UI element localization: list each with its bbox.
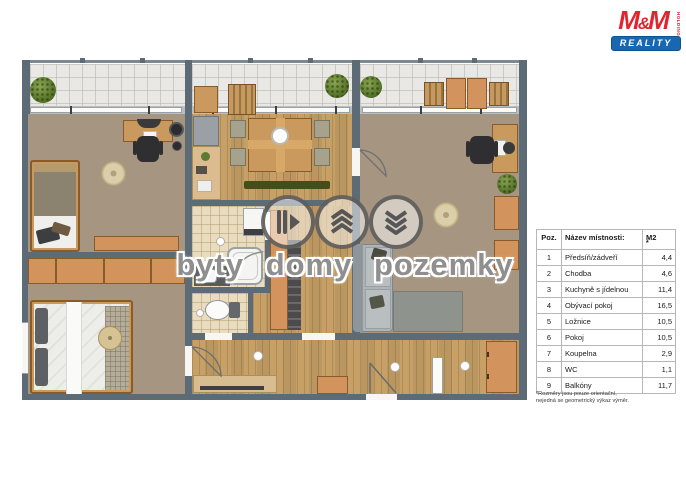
watermark-circle (369, 195, 423, 249)
balcony-chair (489, 82, 509, 106)
window-mullion (148, 106, 150, 114)
cell-name: Obývací pokoj (562, 298, 643, 314)
washing-machine-panel (244, 229, 263, 235)
balcony-table (446, 78, 466, 109)
window-mullion (420, 106, 422, 114)
room-table: Poz. Název místnosti: M2 * 1Předsíň/zádv… (536, 229, 676, 394)
header-area-note: * (646, 242, 672, 246)
table-row: 3Kuchyně s jídelnou11,4 (537, 282, 676, 298)
footnote-line: nejedná se geometrický výkaz výměr. (536, 398, 681, 405)
office-chair (137, 136, 159, 162)
header-pos: Poz. (537, 230, 562, 250)
wardrobe-handle (487, 352, 489, 357)
plant-icon (30, 77, 56, 103)
pillow (35, 308, 48, 344)
cell-pos: 8 (537, 362, 562, 378)
door-leaf (432, 357, 443, 394)
monitor (503, 142, 515, 154)
cell-pos: 2 (537, 266, 562, 282)
cell-area: 10,5 (643, 314, 676, 330)
fridge (193, 116, 219, 146)
logo-holding-text: HOLDING (676, 12, 681, 36)
rail-post (140, 58, 145, 63)
rail-post (472, 58, 477, 63)
round-rug (433, 202, 459, 228)
balcony-table (467, 78, 487, 109)
rail-post (418, 58, 423, 63)
shoe-rack (200, 386, 264, 390)
cell-area: 11,4 (643, 282, 676, 298)
pillow (35, 348, 48, 386)
chair-armrest (133, 141, 137, 155)
cell-pos: 1 (537, 250, 562, 266)
toilet-bowl (205, 300, 230, 320)
table-row: 1Předsíň/zádveří4,4 (537, 250, 676, 266)
door-opening (302, 333, 335, 340)
watermark-circle (315, 195, 369, 249)
cell-area: 1,1 (643, 362, 676, 378)
balcony-chair (424, 82, 444, 106)
hall-wardrobe (486, 341, 517, 393)
cell-name: Koupelna (562, 346, 643, 362)
balcony-pillar (185, 60, 192, 114)
area-rug (393, 291, 463, 332)
chair-armrest (159, 141, 163, 155)
round-rug (101, 161, 126, 186)
rail-post (248, 58, 253, 63)
wall (185, 114, 192, 346)
counter-sink (197, 180, 212, 192)
roof-layers-icon (327, 207, 357, 237)
counter-item (196, 166, 207, 174)
double-door-arrow-icon (273, 207, 303, 237)
cell-name: Předsíň/zádveří (562, 250, 643, 266)
floorplan-screenshot: byty domy pozemky M&M HOLDING REALITY Po… (0, 0, 686, 484)
cabinet (494, 196, 519, 230)
room-table-panel: Poz. Název místnosti: M2 * 1Předsíň/zádv… (536, 229, 676, 394)
window (30, 107, 182, 113)
chair-armrest (466, 141, 470, 157)
door-opening (352, 148, 360, 176)
cell-name: WC (562, 362, 643, 378)
balcony-chair (194, 86, 218, 113)
plate (271, 127, 289, 145)
dining-chair (230, 148, 246, 166)
floor-patch (253, 293, 270, 333)
cell-pos: 5 (537, 314, 562, 330)
door-opening (185, 346, 192, 376)
door-opening (205, 333, 232, 340)
balcony-pillar (352, 60, 360, 114)
logo-reality-banner: REALITY (611, 36, 681, 51)
plant-icon (325, 74, 349, 98)
cell-name: Ložnice (562, 314, 643, 330)
wall (22, 394, 527, 400)
wall (232, 333, 302, 340)
cell-pos: 7 (537, 346, 562, 362)
round-table-knob (108, 336, 112, 340)
logo-mm-text: M&M (611, 6, 675, 38)
window (22, 322, 28, 374)
floor-drain (216, 237, 225, 246)
table-row: 6Pokoj10,5 (537, 330, 676, 346)
cell-area: 10,5 (643, 330, 676, 346)
watermark-word: domy (266, 247, 353, 282)
balcony-rail (22, 60, 527, 63)
table-row: 7Koupelna2,9 (537, 346, 676, 362)
office-chair (470, 136, 494, 164)
table-row: 4Obývací pokoj16,5 (537, 298, 676, 314)
cell-area: 4,4 (643, 250, 676, 266)
cell-name: Kuchyně s jídelnou (562, 282, 643, 298)
dining-chair (314, 120, 330, 138)
table-footnote: *Rozměry jsou pouze orientační, nejedná … (536, 391, 681, 406)
room-table-body: 1Předsíň/zádveří4,42Chodba4,63Kuchyně s … (537, 250, 676, 394)
balcony-pillar (22, 60, 30, 114)
plant-icon (360, 76, 382, 98)
rail-post (80, 58, 85, 63)
header-area-label: M2 (646, 233, 672, 242)
cell-area: 4,6 (643, 266, 676, 282)
wardrobe-handle (487, 374, 489, 379)
watermark-text: byty domy pozemky (150, 247, 540, 283)
watermark-word: pozemky (374, 247, 514, 282)
cell-name: Pokoj (562, 330, 643, 346)
dining-chair (314, 148, 330, 166)
wardrobe-divider (103, 259, 105, 283)
speaker (169, 122, 184, 137)
counter-item (201, 152, 210, 161)
speaker (172, 141, 182, 151)
cell-pos: 3 (537, 282, 562, 298)
ceiling-lamp (390, 362, 400, 372)
plant-icon (497, 174, 517, 194)
header-area: M2 * (643, 230, 676, 250)
rail-post (308, 58, 313, 63)
mm-reality-logo: M&M HOLDING REALITY (611, 10, 681, 51)
hall-bench (193, 375, 277, 393)
table-row: 2Chodba4,6 (537, 266, 676, 282)
duvet-fold (66, 302, 82, 394)
header-name: Název místnosti: (562, 230, 643, 250)
chair-armrest (494, 141, 498, 157)
table-row: 8WC1,1 (537, 362, 676, 378)
floor-drain (196, 309, 204, 317)
cell-pos: 6 (537, 330, 562, 346)
wall (335, 333, 360, 340)
toilet-tank (229, 302, 240, 318)
terrain-chevrons-icon (381, 207, 411, 237)
shoe-cabinet (317, 376, 348, 394)
bed-blanket (34, 172, 76, 216)
entrance-door-opening (366, 394, 397, 400)
window (362, 107, 517, 113)
wall (519, 60, 527, 400)
wall (192, 287, 270, 293)
wall (192, 333, 205, 340)
balcony-bench (228, 84, 256, 115)
wall (352, 114, 360, 148)
footnote-line: *Rozměry jsou pouze orientační, (536, 391, 681, 398)
window-mullion (70, 106, 72, 114)
watermark-word: byty (176, 247, 244, 282)
dining-chair (230, 120, 246, 138)
bed-headboard (34, 164, 76, 172)
runner-rug (244, 181, 330, 189)
cell-area: 16,5 (643, 298, 676, 314)
wall (185, 376, 192, 394)
table-row: 5Ložnice10,5 (537, 314, 676, 330)
cell-pos: 4 (537, 298, 562, 314)
watermark-circle (261, 195, 315, 249)
cell-name: Chodba (562, 266, 643, 282)
ceiling-lamp (460, 361, 470, 371)
table-header-row: Poz. Název místnosti: M2 * (537, 230, 676, 250)
window-mullion (335, 106, 337, 114)
ceiling-lamp (253, 351, 263, 361)
wall (360, 333, 519, 340)
window-mullion (275, 106, 277, 114)
wardrobe-divider (55, 259, 57, 283)
cell-area: 2,9 (643, 346, 676, 362)
